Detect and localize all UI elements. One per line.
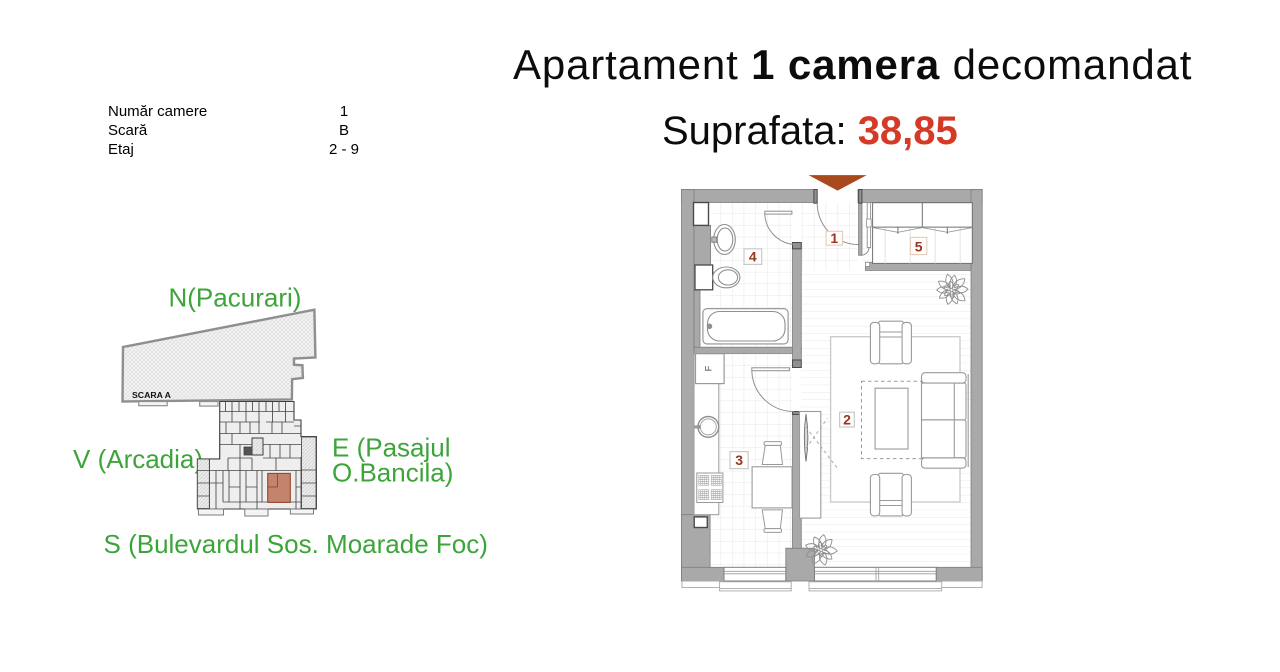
svg-text:N(Pacurari): N(Pacurari) xyxy=(169,283,302,313)
svg-text:4: 4 xyxy=(749,249,757,265)
svg-text:F: F xyxy=(704,365,715,371)
svg-text:5: 5 xyxy=(915,239,923,255)
svg-text:2: 2 xyxy=(843,412,851,428)
svg-text:1: 1 xyxy=(830,230,838,246)
svg-text:3: 3 xyxy=(735,452,743,468)
svg-text:O.Bancila): O.Bancila) xyxy=(332,458,453,488)
svg-text:S (Bulevardul Sos. Moarade Foc: S (Bulevardul Sos. Moarade Foc) xyxy=(104,529,488,559)
svg-text:V (Arcadia): V (Arcadia) xyxy=(73,444,203,474)
svg-text:SCARA A: SCARA A xyxy=(132,390,172,400)
